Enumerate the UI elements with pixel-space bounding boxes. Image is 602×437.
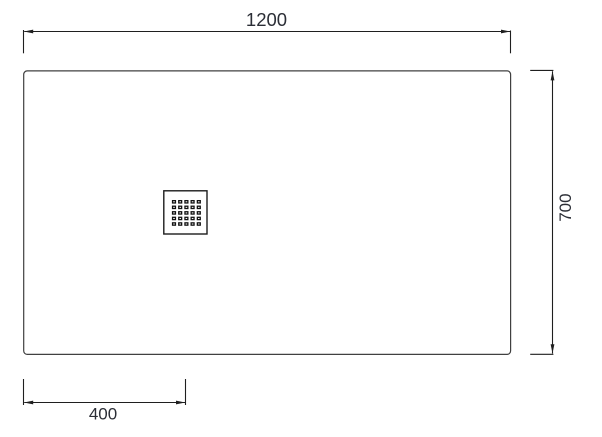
svg-text:1200: 1200 (246, 9, 287, 30)
svg-text:700: 700 (556, 193, 575, 221)
svg-text:400: 400 (89, 405, 117, 424)
